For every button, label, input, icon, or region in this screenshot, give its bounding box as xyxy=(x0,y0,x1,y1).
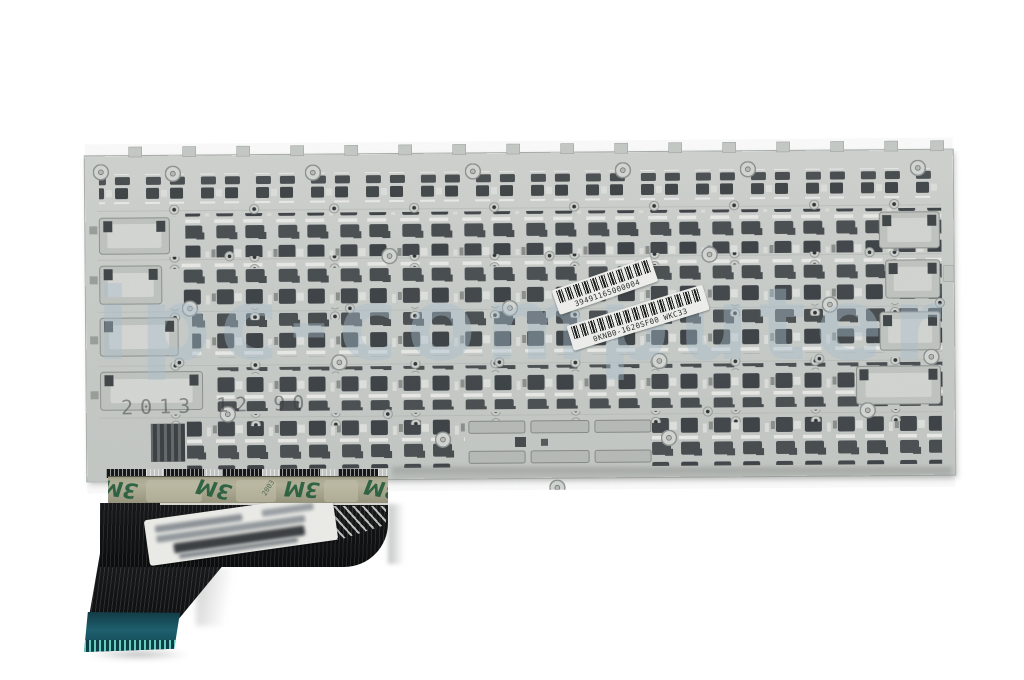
date-stamp: 2013 12 90 xyxy=(121,391,312,420)
ribbon-connector-tip xyxy=(84,612,180,652)
blurred-info-label xyxy=(144,503,339,566)
3m-logo: 3M xyxy=(362,476,388,504)
product-photo-canvas: ipc-computer 2013 12 90 39491165000004 0… xyxy=(0,0,1024,680)
shop-watermark-text: ipc-computer xyxy=(96,266,951,383)
tape-wear-patch xyxy=(324,480,358,502)
adhesive-tape-strip: 3M 3M 3M 3M 2003 xyxy=(108,476,388,506)
connector-contact-fingers xyxy=(84,640,180,652)
blurred-text-line xyxy=(261,503,313,517)
3m-logo: 3M xyxy=(283,476,320,502)
stack-shadow xyxy=(388,504,404,564)
3m-logo: 3M xyxy=(108,476,139,503)
ribbon-cable-stack xyxy=(100,503,388,567)
